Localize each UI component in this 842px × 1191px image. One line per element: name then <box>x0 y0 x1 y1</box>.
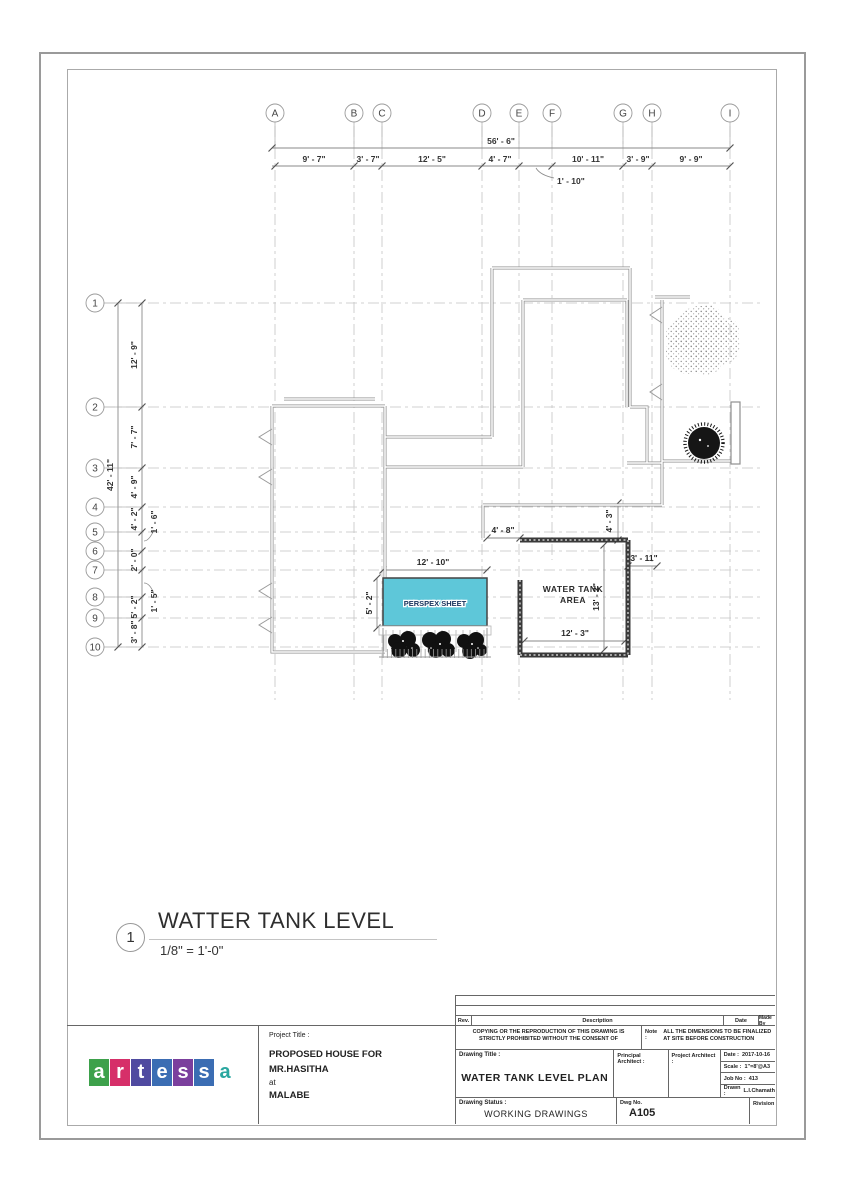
project-line-1: PROPOSED HOUSE FOR <box>269 1049 455 1060</box>
logo-letter: s <box>173 1059 193 1086</box>
dim-overall-height: 42' - 11" <box>105 459 115 491</box>
copyright-text: COPYING OR THE REPRODUCTION OF THIS DRAW… <box>456 1026 641 1049</box>
grid-col-label: H <box>648 109 655 120</box>
view-title: WATTER TANK LEVEL <box>158 908 394 934</box>
grid-row-label: 5 <box>92 528 98 539</box>
job-value: 413 <box>749 1076 758 1082</box>
drawing-status-label: Drawing Status : <box>456 1098 616 1106</box>
dim-text: 9' - 9" <box>679 154 702 164</box>
dim-overall-width: 56' - 6" <box>487 136 515 146</box>
drawing-status: WORKING DRAWINGS <box>456 1109 616 1119</box>
dim-text: 10' - 11" <box>572 154 604 164</box>
view-scale: 1/8" = 1'-0" <box>160 943 223 958</box>
job-label: Job No : <box>724 1076 746 1082</box>
artessa-logo: a r t e s s a <box>89 1059 235 1086</box>
grid-col-label: G <box>619 109 627 120</box>
dim-text: 4' - 2" <box>129 507 139 530</box>
dim-text: 3' - 7" <box>356 154 379 164</box>
status-row: Drawing Status : WORKING DRAWINGS Dwg No… <box>455 1097 775 1124</box>
grid-col-label: C <box>378 109 385 120</box>
large-tree <box>666 305 740 375</box>
dim-text: 7' - 7" <box>129 425 139 448</box>
perspex-label: PERSPEX SHEET <box>404 599 467 608</box>
water-tank-label-1: WATER TANK <box>543 584 604 594</box>
project-architect-label: Project Architect : <box>669 1050 720 1065</box>
grid-row-label: 9 <box>92 614 98 625</box>
grid-col-label: E <box>516 109 523 120</box>
water-tank-label-2: AREA <box>560 595 586 605</box>
grid-bubbles-top <box>266 104 739 122</box>
perspex-sheet <box>379 578 491 659</box>
drawn-label: Drawn : <box>724 1085 741 1097</box>
note-cell: Note : ALL THE DIMENSIONS TO BE FINALIZE… <box>641 1026 775 1049</box>
grid-row-label: 7 <box>92 566 98 577</box>
scale-label: Scale : <box>724 1064 742 1070</box>
dim-text: 5' - 2" <box>129 595 139 618</box>
drawing-title-row: Drawing Title : WATER TANK LEVEL PLAN Pr… <box>455 1049 775 1097</box>
date-value: 2017-10-16 <box>742 1052 770 1058</box>
logo-letter: r <box>110 1059 130 1086</box>
scale-field: Scale : 1"=8'@A3 <box>721 1062 775 1074</box>
dwg-no-label: Dwg No. <box>617 1098 749 1106</box>
dim-text: 12' - 9" <box>129 341 139 369</box>
building-walls <box>259 268 740 652</box>
drawing-sheet: A B C D E F G H I 1 2 3 4 5 6 7 8 9 10 <box>0 0 842 1191</box>
grid-row-label: 10 <box>89 643 101 654</box>
grid-row-label: 8 <box>92 593 98 604</box>
drawn-value: L.I.Chamath <box>744 1088 775 1094</box>
dim-text: 1' - 10" <box>557 176 585 186</box>
view-number-bubble: 1 <box>116 923 145 952</box>
scale-value: 1"=8'@A3 <box>744 1064 770 1070</box>
logo-letter: a <box>215 1059 235 1086</box>
dim-perspex-width: 12' - 10" <box>417 557 450 567</box>
grid-row-label: 1 <box>92 299 98 310</box>
grid-col-label: B <box>351 109 358 120</box>
grid-row-label: 4 <box>92 503 98 514</box>
dim-text: 3' - 9" <box>626 154 649 164</box>
dim-text: 3' - 8" <box>129 620 139 643</box>
dim-tank-width: 12' - 3" <box>561 628 589 638</box>
logo-letter: t <box>131 1059 151 1086</box>
note-row: COPYING OR THE REPRODUCTION OF THIS DRAW… <box>455 1025 775 1049</box>
grid-connectors <box>104 122 730 647</box>
principal-architect-label: Principal Architect : <box>614 1050 667 1065</box>
view-title-underline <box>149 939 437 940</box>
logo-cell: a r t e s s a <box>67 1026 258 1124</box>
grid-col-label: A <box>272 109 279 120</box>
title-block-left: a r t e s s a Project Title : PROPOSED H… <box>67 1025 455 1124</box>
dim-gap: 4' - 8" <box>491 525 514 535</box>
dim-text: 4' - 9" <box>129 475 139 498</box>
logo-letter: a <box>89 1059 109 1086</box>
dim-tank-top: 4' - 3" <box>604 509 614 532</box>
job-field: Job No : 413 <box>721 1073 775 1085</box>
note-label: Note : <box>645 1029 660 1049</box>
note-text: ALL THE DIMENSIONS TO BE FINALIZED AT SI… <box>663 1029 773 1049</box>
grid-row-label: 2 <box>92 403 98 414</box>
dwg-no: A105 <box>629 1107 749 1119</box>
dim-text: 1' - 5" <box>149 589 159 612</box>
drawing-title: WATER TANK LEVEL PLAN <box>456 1072 613 1084</box>
dim-text: 4' - 7" <box>488 154 511 164</box>
project-line-4: MALABE <box>269 1090 455 1101</box>
drawn-field: Drawn : L.I.Chamath <box>721 1085 775 1097</box>
date-label: Date : <box>724 1052 739 1058</box>
dim-tank-right: 3' - 11" <box>630 553 657 563</box>
project-line-2: MR.HASITHA <box>269 1064 455 1075</box>
revision-table: Rev. Description Date Made By <box>455 995 775 1025</box>
project-title-label: Project Title : <box>269 1032 455 1039</box>
project-title-cell: Project Title : PROPOSED HOUSE FOR MR.HA… <box>258 1026 455 1124</box>
dimension-lines <box>118 148 730 650</box>
grid-col-label: I <box>729 109 732 120</box>
dim-perspex-height: 5' - 2" <box>364 591 374 614</box>
revision-label: Rivision <box>750 1098 775 1107</box>
logo-letter: e <box>152 1059 172 1086</box>
logo-letter: s <box>194 1059 214 1086</box>
dim-text: 9' - 7" <box>302 154 325 164</box>
dim-text: 2' - 0" <box>129 548 139 571</box>
dim-text: 12' - 5" <box>418 154 446 164</box>
grid-col-label: D <box>478 109 485 120</box>
project-line-3: at <box>269 1078 455 1087</box>
column <box>731 402 740 464</box>
date-field: Date : 2017-10-16 <box>721 1050 775 1062</box>
drawing-title-label: Drawing Title : <box>456 1050 613 1058</box>
view-number: 1 <box>126 929 134 946</box>
grid-row-label: 3 <box>92 464 98 475</box>
grid-row-label: 6 <box>92 547 98 558</box>
grid-col-label: F <box>549 109 555 120</box>
dim-text: 1' - 6" <box>149 510 159 533</box>
small-tree <box>685 424 723 462</box>
dimension-ticks <box>115 145 734 654</box>
